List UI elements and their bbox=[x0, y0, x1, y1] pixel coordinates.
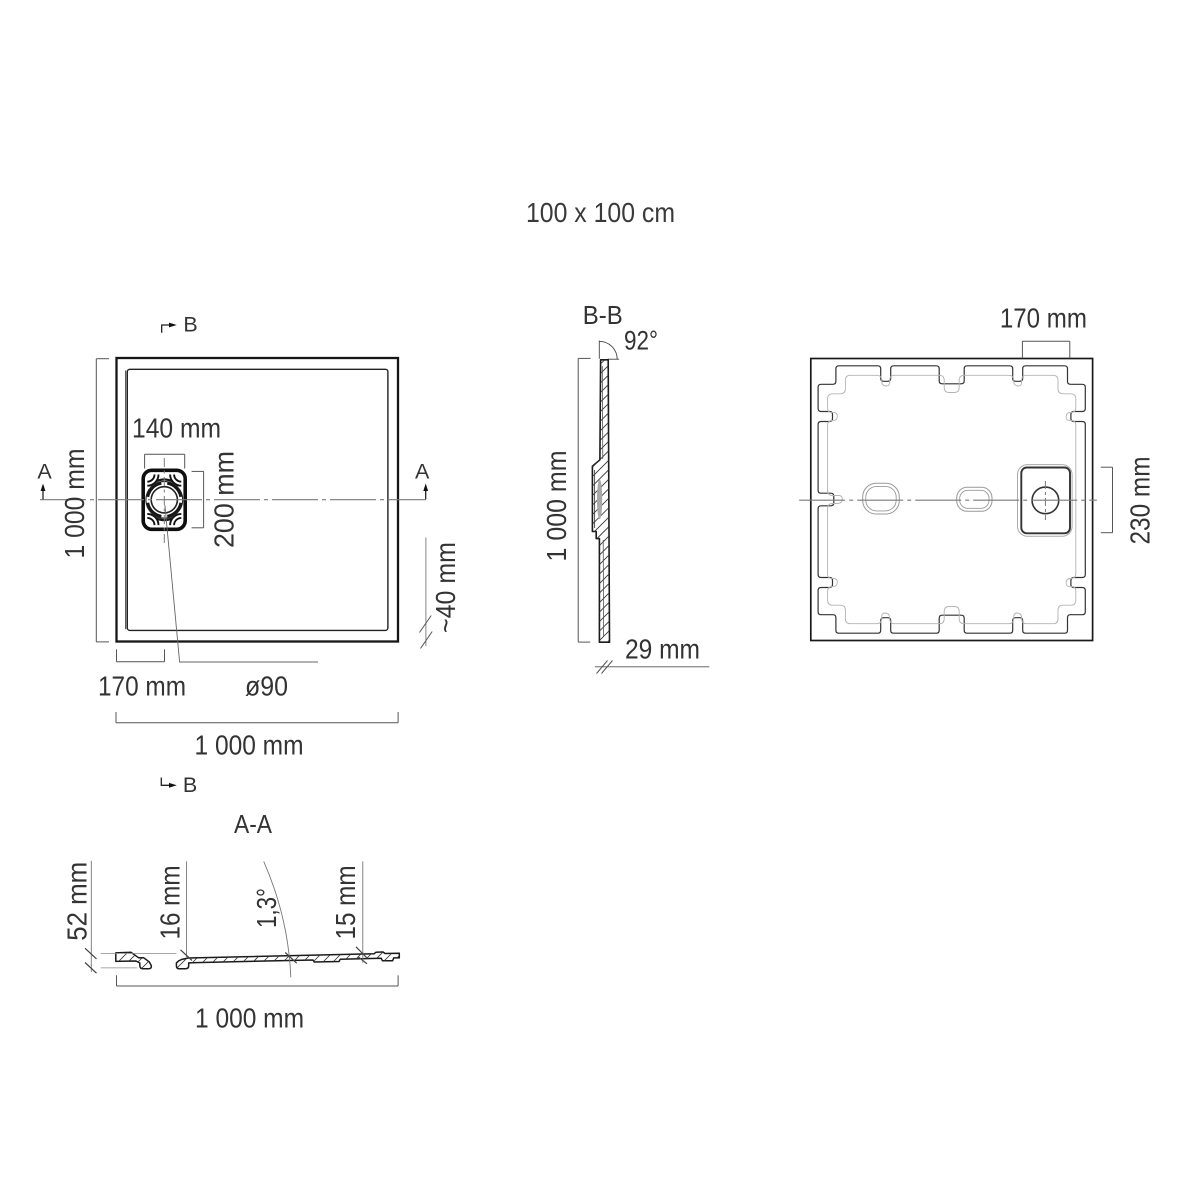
svg-text:170 mm: 170 mm bbox=[98, 671, 186, 702]
svg-text:230 mm: 230 mm bbox=[1125, 457, 1156, 545]
svg-text:~40 mm: ~40 mm bbox=[430, 542, 461, 633]
svg-text:170 mm: 170 mm bbox=[1000, 302, 1087, 333]
svg-text:ø90: ø90 bbox=[245, 671, 288, 702]
svg-text:A: A bbox=[415, 460, 430, 484]
svg-text:52 mm: 52 mm bbox=[62, 862, 93, 941]
svg-text:1,3°: 1,3° bbox=[251, 888, 282, 928]
svg-text:B: B bbox=[183, 313, 197, 337]
svg-text:200 mm: 200 mm bbox=[209, 451, 240, 548]
svg-text:A: A bbox=[37, 459, 52, 483]
svg-text:29 mm: 29 mm bbox=[625, 634, 700, 665]
svg-text:140 mm: 140 mm bbox=[132, 413, 221, 444]
svg-text:1 000 mm: 1 000 mm bbox=[195, 730, 304, 761]
svg-text:16 mm: 16 mm bbox=[155, 866, 186, 940]
svg-text:B-B: B-B bbox=[583, 300, 623, 330]
svg-text:A-A: A-A bbox=[234, 809, 273, 839]
svg-text:92°: 92° bbox=[624, 325, 658, 355]
svg-text:1 000 mm: 1 000 mm bbox=[541, 451, 572, 562]
svg-text:15 mm: 15 mm bbox=[330, 866, 361, 940]
svg-text:B: B bbox=[183, 773, 197, 797]
svg-text:100 x 100 cm: 100 x 100 cm bbox=[526, 197, 675, 228]
svg-text:1 000 mm: 1 000 mm bbox=[195, 1003, 304, 1034]
svg-text:1 000 mm: 1 000 mm bbox=[59, 449, 90, 559]
